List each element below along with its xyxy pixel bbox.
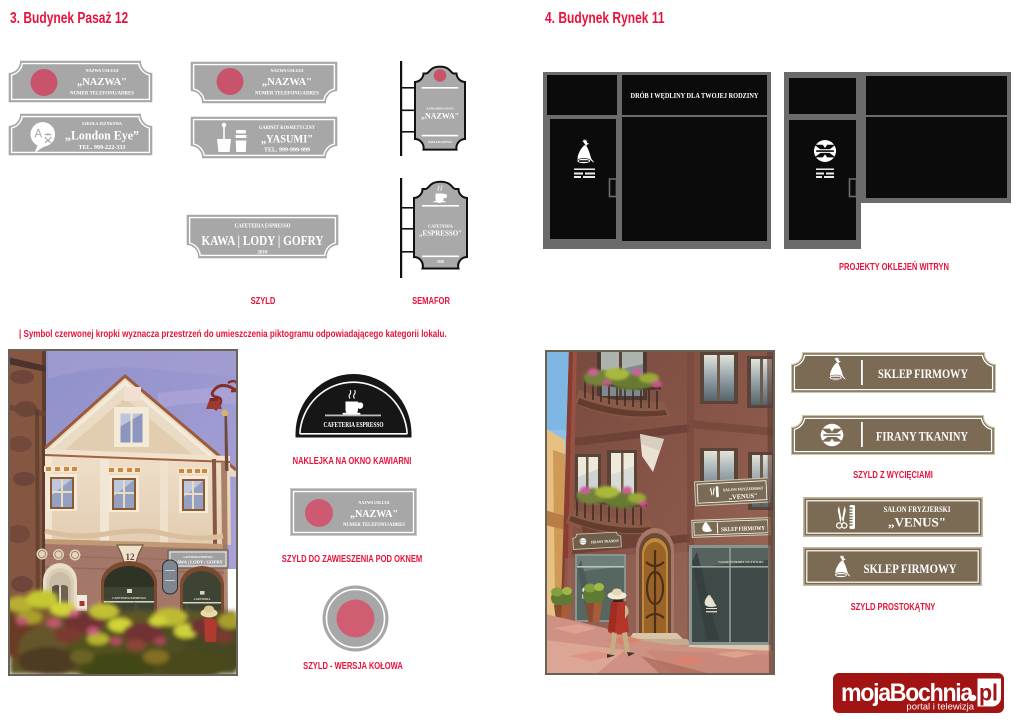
svg-text:2010: 2010 bbox=[258, 251, 269, 256]
svg-text:portal i telewizja: portal i telewizja bbox=[906, 702, 974, 713]
svg-text:NUMER TELEFONU/ADRES: NUMER TELEFONU/ADRES bbox=[255, 91, 319, 97]
svg-text:SZKOŁA JĘZYKOWA: SZKOŁA JĘZYKOWA bbox=[82, 121, 123, 126]
svg-text:NAZWA USŁUGI: NAZWA USŁUGI bbox=[271, 68, 304, 73]
svg-text:„NAZWA": „NAZWA" bbox=[350, 509, 398, 520]
svg-text:DATA ZAŁOŻENIA: DATA ZAŁOŻENIA bbox=[428, 139, 452, 144]
svg-text:CAFETERIA ESPRESSO: CAFETERIA ESPRESSO bbox=[324, 422, 384, 429]
svg-text:„NAZWA": „NAZWA" bbox=[262, 76, 312, 88]
svg-text:KAWA | LODY | GOFRY: KAWA | LODY | GOFRY bbox=[173, 560, 223, 565]
svg-text:GABINET KOSMETYCZNY: GABINET KOSMETYCZNY bbox=[259, 125, 315, 131]
svg-text:KAWA | LODY | GOFRY: KAWA | LODY | GOFRY bbox=[202, 234, 324, 249]
svg-text:CAFETERIA: CAFETERIA bbox=[194, 598, 210, 601]
svg-text:„ESPRESSO": „ESPRESSO" bbox=[419, 229, 462, 238]
svg-text:2010: 2010 bbox=[437, 260, 444, 264]
svg-text:„YASUMI": „YASUMI" bbox=[261, 134, 313, 146]
svg-text:SKLEP FIRMOWY: SKLEP FIRMOWY bbox=[878, 367, 968, 381]
svg-text:TEL. 999-222-333: TEL. 999-222-333 bbox=[79, 145, 126, 151]
svg-text:„VENUS": „VENUS" bbox=[888, 516, 946, 530]
svg-text:NAZWA USŁUGI: NAZWA USŁUGI bbox=[86, 68, 119, 73]
svg-text:NASZE WYROBY NA TWOJEJ: NASZE WYROBY NA TWOJEJ bbox=[718, 560, 763, 564]
svg-text:FIRANY TKANINY: FIRANY TKANINY bbox=[876, 430, 968, 444]
svg-text:CAFETERIA ESPRESSO: CAFETERIA ESPRESSO bbox=[112, 596, 146, 600]
svg-text:KATEGORIA USŁUGI: KATEGORIA USŁUGI bbox=[427, 107, 455, 111]
svg-text:DRÓB I WĘDLINY DLA TWOJEJ RODZ: DRÓB I WĘDLINY DLA TWOJEJ RODZINY bbox=[631, 90, 760, 100]
svg-text:„NAZWA": „NAZWA" bbox=[77, 76, 127, 88]
svg-text:CAFETERIA ESPRESSO: CAFETERIA ESPRESSO bbox=[235, 223, 291, 230]
svg-text:SKLEP FIRMOWY: SKLEP FIRMOWY bbox=[864, 561, 957, 576]
svg-text:NAZWA USŁUGI: NAZWA USŁUGI bbox=[359, 500, 390, 505]
svg-text:SALON FRYZJERSKI: SALON FRYZJERSKI bbox=[884, 505, 951, 514]
svg-text:A: A bbox=[35, 129, 43, 141]
svg-text:NUMER TELEFONU/ADRES: NUMER TELEFONU/ADRES bbox=[70, 91, 134, 97]
svg-text:„London Eye”: „London Eye” bbox=[65, 128, 139, 143]
svg-text:TEL. 999-999-999: TEL. 999-999-999 bbox=[264, 148, 310, 154]
svg-text:12: 12 bbox=[126, 552, 136, 562]
svg-text:NUMER TELEFONU/ADRES: NUMER TELEFONU/ADRES bbox=[343, 522, 405, 528]
svg-text:pl: pl bbox=[979, 680, 998, 706]
svg-text:„NAZWA": „NAZWA" bbox=[421, 112, 459, 121]
